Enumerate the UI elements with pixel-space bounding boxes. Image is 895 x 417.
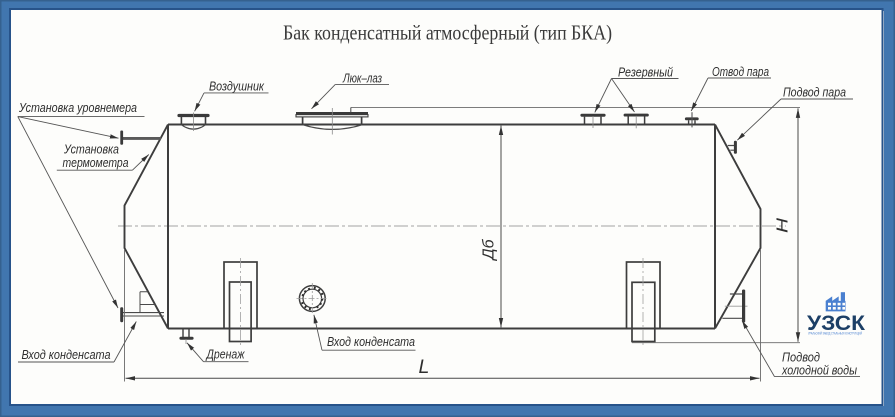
svg-text:H: H: [775, 217, 792, 233]
svg-text:Бак конденсатный атмосферный (: Бак конденсатный атмосферный (тип БКА): [283, 21, 612, 45]
svg-text:Вход конденсата: Вход конденсата: [22, 347, 111, 362]
svg-text:Люк–лаз: Люк–лаз: [342, 70, 382, 85]
svg-text:Дб: Дб: [481, 239, 498, 262]
svg-text:Подвод пара: Подвод пара: [783, 84, 846, 99]
svg-text:УРАЛЬСКИЙ ЗАВОД СТАЛЬНЫХ КОНСТ: УРАЛЬСКИЙ ЗАВОД СТАЛЬНЫХ КОНСТРУКЦИЙ: [808, 331, 862, 335]
svg-text:L: L: [419, 356, 430, 378]
svg-text:Воздушник: Воздушник: [209, 79, 265, 94]
svg-text:Вход конденсата: Вход конденсата: [327, 334, 415, 349]
svg-text:Отвод пара: Отвод пара: [712, 64, 769, 79]
svg-text:Резервный: Резервный: [618, 65, 674, 80]
svg-text:термометра: термометра: [63, 155, 129, 170]
svg-text:Дренаж: Дренаж: [205, 346, 245, 361]
svg-text:холодной воды: холодной воды: [781, 363, 857, 378]
svg-text:Установка уровнемера: Установка уровнемера: [18, 100, 137, 115]
